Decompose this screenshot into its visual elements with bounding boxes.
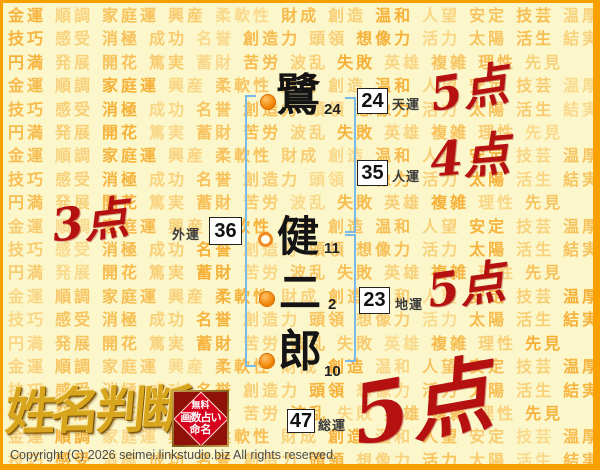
person-fortune-value-box: 35	[357, 160, 388, 186]
background-keyword: 温厚	[563, 74, 600, 97]
background-keyword: 技巧	[8, 238, 46, 261]
background-keyword: 発展	[55, 121, 93, 144]
outer-fortune-bracket	[245, 95, 256, 367]
surname-character: 鷺	[276, 74, 320, 118]
background-keyword: 頭領	[309, 379, 347, 402]
background-keyword: 開花	[102, 261, 140, 284]
background-keyword: 名誉	[196, 308, 234, 331]
background-keyword: 篤実	[149, 332, 187, 355]
background-keyword: 想像力	[356, 238, 413, 261]
background-keyword: 金運	[8, 215, 46, 238]
background-keyword: 消極	[102, 27, 140, 50]
background-keyword: 技芸	[516, 144, 554, 167]
badge-line-free: 無料	[174, 401, 227, 411]
site-logo-seimei-handan[interactable]: 姓名判断	[4, 384, 189, 437]
background-keyword: 太陽	[469, 449, 507, 470]
background-keyword: 活生	[516, 238, 554, 261]
earth-fortune-score: 5点	[424, 258, 508, 314]
background-keyword: 英雄	[384, 121, 422, 144]
background-keyword: 金運	[8, 355, 46, 378]
background-keyword: 温厚	[563, 215, 600, 238]
background-keyword: 篤実	[149, 191, 187, 214]
background-keyword: 苦労	[243, 402, 281, 425]
background-keyword: 感受	[55, 27, 93, 50]
background-keyword: 興産	[168, 4, 206, 27]
background-keyword: 財成	[281, 144, 319, 167]
background-keyword: 感受	[55, 308, 93, 331]
background-keyword: 先見	[525, 261, 563, 284]
background-keyword: 活生	[516, 168, 554, 191]
background-keyword: 結実	[563, 379, 600, 402]
background-keyword: 蓄財	[196, 191, 234, 214]
background-keyword: 名誉	[196, 27, 234, 50]
background-keyword: 先見	[525, 332, 563, 355]
background-keyword: 技芸	[516, 425, 554, 448]
background-keyword: 篤実	[149, 51, 187, 74]
background-keyword: 創造力	[243, 27, 300, 50]
person-fortune-bracket	[345, 97, 356, 233]
background-keyword: 円満	[8, 261, 46, 284]
background-keyword: 発展	[55, 261, 93, 284]
background-keyword: 温和	[375, 215, 413, 238]
person-fortune-score: 4点	[428, 131, 511, 185]
background-keyword: 興産	[168, 355, 206, 378]
background-keyword: 消極	[102, 308, 140, 331]
background-keyword: 家庭運	[102, 144, 159, 167]
given-character-2-stroke-count: 2	[328, 296, 336, 313]
copyright-text: Copyright (C) 2026 seimei.linkstudio.biz…	[10, 448, 337, 462]
background-keyword: 頭領	[309, 168, 347, 191]
background-keyword: 名誉	[196, 168, 234, 191]
background-keyword: 温厚	[563, 285, 600, 308]
background-keyword: 技芸	[516, 4, 554, 27]
name-char-bullet	[259, 353, 275, 369]
outer-fortune-value-box: 36	[209, 217, 242, 245]
earth-fortune-bracket	[345, 234, 356, 362]
background-keyword: 活生	[516, 379, 554, 402]
background-keyword: 人望	[422, 4, 460, 27]
background-keyword: 技芸	[516, 285, 554, 308]
background-keyword: 先見	[525, 51, 563, 74]
background-keyword: 技芸	[516, 74, 554, 97]
background-keyword: 安定	[469, 4, 507, 27]
background-keyword: 結実	[563, 449, 600, 470]
given-character-1: 健	[277, 216, 319, 258]
background-keyword: 技巧	[8, 98, 46, 121]
badge-line-meimei: 命名	[174, 424, 227, 437]
background-keyword: 成功	[149, 168, 187, 191]
background-keyword: 開花	[102, 332, 140, 355]
heaven-fortune-value-box: 24	[357, 88, 388, 114]
background-keyword: 金運	[8, 74, 46, 97]
badge-text: 無料 画数占い 命名	[174, 392, 227, 445]
background-keyword: 興産	[168, 144, 206, 167]
background-keyword: 感受	[55, 98, 93, 121]
background-keyword: 失敗	[337, 261, 375, 284]
background-keyword: 活生	[516, 308, 554, 331]
background-keyword: 成功	[149, 308, 187, 331]
background-keyword: 結実	[563, 98, 600, 121]
background-keyword: 温厚	[563, 355, 600, 378]
background-keyword: 開花	[102, 121, 140, 144]
background-keyword: 家庭運	[102, 355, 159, 378]
background-keyword: 円満	[8, 121, 46, 144]
background-keyword: 柔軟性	[215, 4, 272, 27]
background-keyword: 活力	[422, 27, 460, 50]
background-keyword: 英雄	[384, 191, 422, 214]
background-keyword: 金運	[8, 4, 46, 27]
background-keyword: 理性	[478, 332, 516, 355]
background-keyword: 順調	[55, 74, 93, 97]
background-keyword: 順調	[55, 144, 93, 167]
total-fortune-score: 5点	[346, 353, 497, 458]
background-keyword: 開花	[102, 51, 140, 74]
background-keyword: 英雄	[384, 51, 422, 74]
surname-stroke-count: 24	[324, 101, 341, 118]
free-kazu-uranai-badge[interactable]: 無料 画数占い 命名	[172, 390, 229, 447]
background-keyword: 波乱	[290, 121, 328, 144]
background-keyword: 失敗	[337, 51, 375, 74]
background-keyword: 技巧	[8, 27, 46, 50]
background-keyword: 太陽	[469, 27, 507, 50]
total-fortune-label: 総運	[318, 415, 346, 434]
given-character-2: 二	[279, 272, 321, 314]
heaven-fortune-label: 天運	[392, 94, 420, 113]
background-keyword: 財成	[281, 4, 319, 27]
background-keyword: 家庭運	[102, 285, 159, 308]
background-keyword: 名誉	[196, 98, 234, 121]
background-keyword: 活生	[516, 449, 554, 470]
background-keyword: 成功	[149, 98, 187, 121]
background-keyword: 先見	[525, 402, 563, 425]
background-keyword: 金運	[8, 285, 46, 308]
background-keyword: 感受	[55, 168, 93, 191]
background-keyword: 技芸	[516, 355, 554, 378]
background-keyword: 先見	[525, 121, 563, 144]
background-keyword: 消極	[102, 98, 140, 121]
background-keyword: 複雑	[431, 191, 469, 214]
background-keyword: 創造力	[243, 379, 300, 402]
background-keyword: 蓄財	[196, 51, 234, 74]
name-char-bullet	[259, 291, 275, 307]
background-keyword: 想像力	[356, 27, 413, 50]
background-keyword: 温和	[375, 4, 413, 27]
background-keyword: 失敗	[337, 191, 375, 214]
background-keyword: 技巧	[8, 308, 46, 331]
background-keyword: 順調	[55, 4, 93, 27]
background-keyword: 英雄	[384, 332, 422, 355]
background-keyword: 蓄財	[196, 261, 234, 284]
background-keyword: 円満	[8, 191, 46, 214]
total-fortune-value-box: 47	[287, 409, 315, 433]
earth-fortune-label: 地運	[395, 294, 423, 313]
heaven-fortune-score: 5点	[427, 60, 511, 118]
background-keyword: 結実	[563, 27, 600, 50]
background-keyword: 消極	[102, 168, 140, 191]
background-keyword: 活生	[516, 98, 554, 121]
badge-background: 無料 画数占い 命名	[174, 392, 227, 445]
seimei-handan-result-page: 金運順調家庭運興産柔軟性財成創造温和人望安定技芸温厚技巧感受消極成功名誉創造力頭…	[0, 0, 600, 470]
background-keyword: 興産	[168, 74, 206, 97]
background-keyword: 篤実	[149, 121, 187, 144]
background-keyword: 活力	[422, 238, 460, 261]
outer-fortune-label: 外運	[172, 224, 200, 243]
background-keyword: 失敗	[337, 121, 375, 144]
background-keyword: 篤実	[149, 261, 187, 284]
background-keyword: 先見	[525, 191, 563, 214]
background-keyword: 理性	[478, 191, 516, 214]
background-keyword: 結実	[563, 168, 600, 191]
earth-fortune-value-box: 23	[359, 287, 390, 314]
background-keyword: 人望	[422, 215, 460, 238]
background-keyword: 頭領	[309, 27, 347, 50]
background-keyword: 円満	[8, 332, 46, 355]
background-keyword: 成功	[149, 27, 187, 50]
given-character-3-stroke-count: 10	[324, 363, 341, 380]
background-keyword: 失敗	[337, 332, 375, 355]
given-character-3: 郎	[278, 330, 322, 374]
background-keyword: 創造	[328, 4, 366, 27]
background-keyword: 興産	[168, 285, 206, 308]
background-keyword: 蓄財	[196, 332, 234, 355]
background-keyword: 英雄	[384, 261, 422, 284]
given-character-1-stroke-count: 11	[324, 240, 340, 257]
background-keyword: 温厚	[563, 4, 600, 27]
background-keyword: 家庭運	[102, 74, 159, 97]
background-keyword: 柔軟性	[215, 144, 272, 167]
background-keyword: 順調	[55, 355, 93, 378]
background-keyword: 活生	[516, 27, 554, 50]
background-keyword: 温厚	[563, 425, 600, 448]
background-keyword: 結実	[563, 308, 600, 331]
outer-fortune-score: 3点	[50, 195, 131, 249]
background-keyword: 発展	[55, 332, 93, 355]
background-keyword: 安定	[469, 215, 507, 238]
background-keyword: 温厚	[563, 144, 600, 167]
name-char-bullet	[260, 94, 276, 110]
background-keyword: 技巧	[8, 168, 46, 191]
person-fortune-label: 人運	[392, 166, 420, 185]
background-keyword: 結実	[563, 238, 600, 261]
background-keyword: 順調	[55, 285, 93, 308]
name-char-bullet	[258, 232, 273, 247]
background-keyword: 発展	[55, 51, 93, 74]
background-keyword: 家庭運	[102, 4, 159, 27]
background-keyword: 円満	[8, 51, 46, 74]
background-keyword: 蓄財	[196, 121, 234, 144]
background-keyword: 技芸	[516, 215, 554, 238]
background-keyword: 金運	[8, 144, 46, 167]
